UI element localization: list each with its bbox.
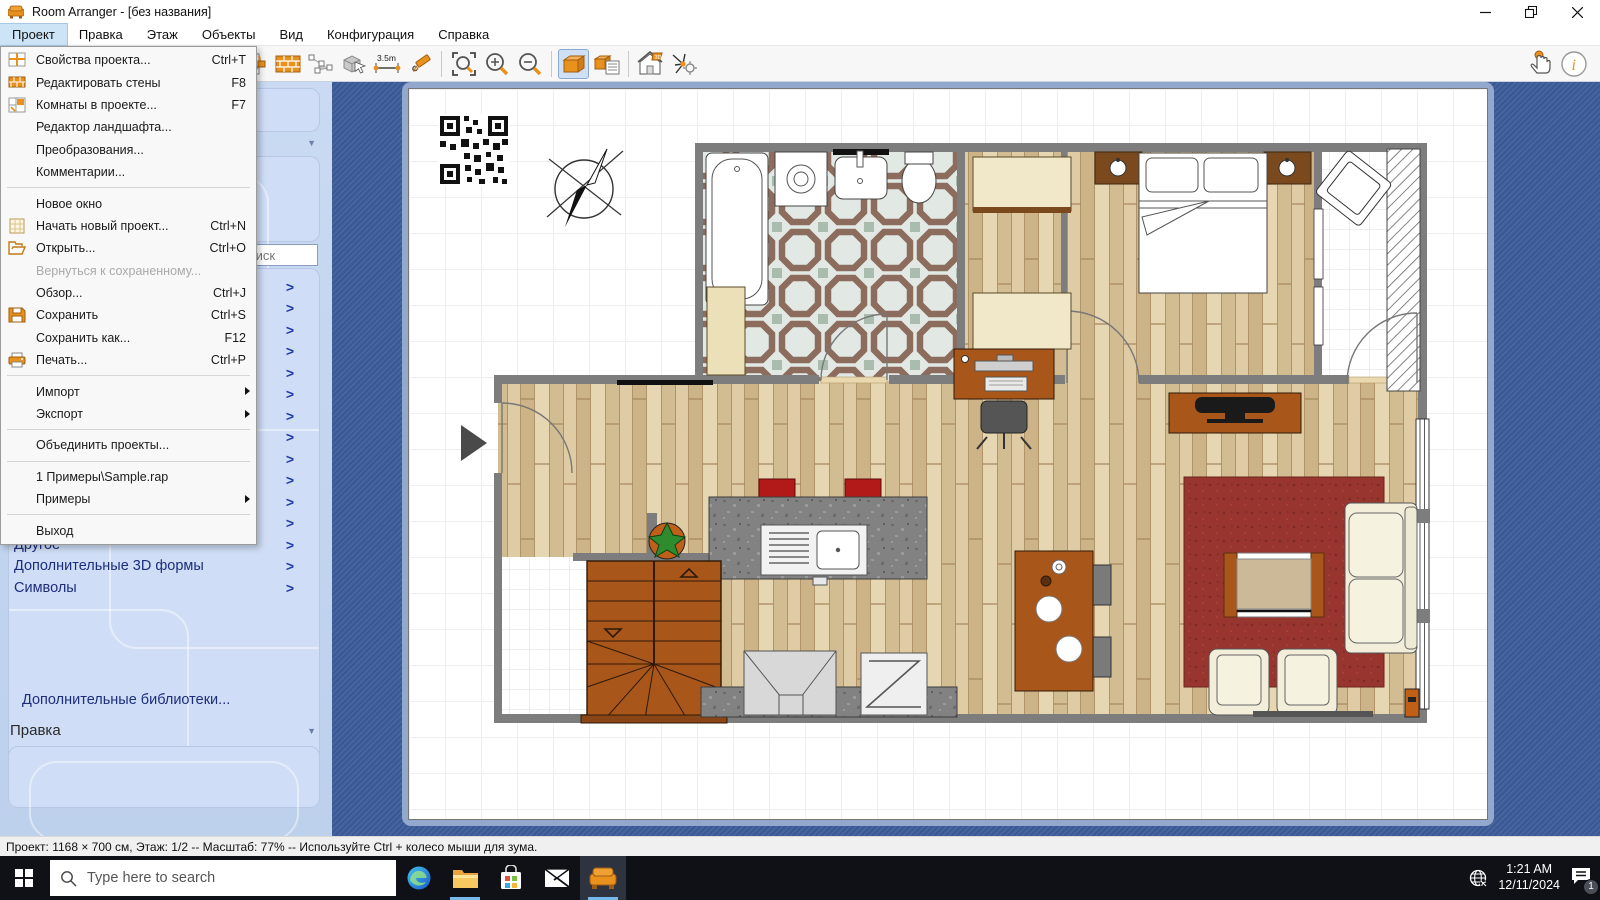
zoom-fit-button[interactable] (448, 49, 479, 79)
toolbar-separator (551, 51, 552, 77)
walkthrough-button[interactable]: 3D (635, 49, 666, 79)
edit-walls-icon (8, 74, 26, 90)
menu-item-save-as[interactable]: Сохранить как...F12 (1, 327, 256, 349)
draw-button[interactable] (404, 49, 435, 79)
edit-section-header: Правка (10, 722, 61, 739)
sofa-app-icon (8, 5, 24, 19)
entry-mat (617, 380, 713, 385)
submenu-arrow-icon (245, 387, 250, 395)
project-properties-icon (8, 52, 26, 68)
plan-paper[interactable] (408, 88, 1488, 820)
armchair (1209, 649, 1269, 715)
taskbar-clock[interactable]: 1:21 AM 12/11/2024 (1498, 862, 1560, 893)
sofa-app-icon (589, 866, 617, 890)
menu-separator (7, 461, 250, 462)
windows-taskbar: Type here to search 1:21 AM 12/11/2024 1 (0, 856, 1600, 900)
floor-marker[interactable] (461, 425, 487, 461)
wardrobe-hatched (1387, 149, 1420, 391)
menu-edit[interactable]: Правка (67, 24, 135, 45)
menu-item-project-properties[interactable]: Свойства проекта...Ctrl+T (1, 49, 256, 71)
chevron-right-icon: > (286, 558, 294, 574)
taskbar-app-file-explorer[interactable] (442, 856, 488, 900)
open-folder-icon (8, 240, 26, 256)
library-category-extra-3d-shapes[interactable]: Дополнительные 3D формы> (14, 556, 314, 578)
chevron-right-icon: > (286, 322, 294, 338)
menu-item-comments[interactable]: Комментарии... (1, 161, 256, 183)
chevron-right-icon: > (286, 279, 294, 295)
toolbar-separator (628, 51, 629, 77)
notification-count-badge: 1 (1583, 879, 1599, 895)
spray-light-icon (671, 51, 697, 77)
object-list-3d-button[interactable] (591, 49, 622, 79)
zoom-out-icon (517, 51, 543, 77)
measure-button[interactable]: 3.5m (371, 49, 402, 79)
svg-text:3.5m: 3.5m (377, 53, 396, 63)
plant (649, 523, 685, 559)
restore-button[interactable] (1508, 0, 1554, 24)
chevron-right-icon: > (286, 343, 294, 359)
menu-configuration[interactable]: Конфигурация (315, 24, 426, 45)
living-room (1184, 477, 1419, 717)
chevron-right-icon: > (286, 580, 294, 596)
close-button[interactable] (1554, 0, 1600, 24)
zoom-in-button[interactable] (481, 49, 512, 79)
library-category-symbols[interactable]: Символы> (14, 577, 314, 599)
menu-view[interactable]: Вид (267, 24, 315, 45)
chevron-right-icon: > (286, 300, 294, 316)
select-nodes-icon (308, 52, 334, 76)
menu-item-landscape-editor[interactable]: Редактор ландшафта... (1, 116, 256, 138)
menu-item-browse[interactable]: Обзор...Ctrl+J (1, 282, 256, 304)
menu-bar: Проект Правка Этаж Объекты Вид Конфигура… (0, 24, 1600, 46)
menu-item-recent-file-1[interactable]: 1 Примеры\Sample.rap (1, 466, 256, 488)
menu-item-transformations[interactable]: Преобразования... (1, 139, 256, 161)
collapse-edit-icon[interactable]: ▼ (307, 726, 316, 736)
chevron-right-icon: > (286, 365, 294, 381)
clock-date: 12/11/2024 (1498, 878, 1560, 894)
hand-pointer-icon (1528, 50, 1554, 78)
menu-item-merge-projects[interactable]: Объединить проекты... (1, 434, 256, 456)
render-settings-button[interactable] (668, 49, 699, 79)
compass-rose (547, 149, 623, 227)
chevron-right-icon: > (286, 451, 294, 467)
pencil-icon (407, 52, 433, 76)
zoom-in-icon (484, 51, 510, 77)
qr-code (438, 114, 510, 186)
view-3d-button[interactable] (558, 49, 589, 79)
move-object-3d-button[interactable] (338, 49, 369, 79)
menu-objects[interactable]: Объекты (190, 24, 268, 45)
armchair (1277, 649, 1337, 715)
restore-icon (1525, 6, 1537, 18)
network-globe-icon[interactable] (1468, 868, 1488, 888)
chevron-right-icon: > (286, 515, 294, 531)
svg-text:3D: 3D (654, 55, 661, 61)
menu-item-exit[interactable]: Выход (1, 519, 256, 541)
file-explorer-icon (452, 867, 479, 890)
sofa (1345, 503, 1417, 653)
menu-help[interactable]: Справка (426, 24, 501, 45)
chevron-right-icon: > (286, 537, 294, 553)
zoom-fit-icon (451, 51, 477, 77)
more-libraries-link[interactable]: Дополнительные библиотеки... (22, 692, 230, 708)
menu-project[interactable]: Проект (0, 24, 67, 45)
paper-mat (402, 82, 1494, 826)
system-tray: 1:21 AM 12/11/2024 1 (1468, 856, 1592, 900)
rooms-icon (8, 97, 26, 113)
submenu-arrow-icon (245, 410, 250, 418)
close-icon (1572, 7, 1583, 18)
menu-item-new-window[interactable]: Новое окно (1, 192, 256, 214)
svg-text:i: i (1571, 57, 1575, 74)
taskbar-app-mail[interactable] (534, 856, 580, 900)
printer-icon (8, 352, 26, 368)
save-floppy-icon (8, 307, 26, 323)
search-icon (60, 870, 77, 887)
menu-floor[interactable]: Этаж (135, 24, 190, 45)
door-threshold (821, 377, 887, 383)
taskbar-search-placeholder: Type here to search (87, 870, 215, 886)
menu-item-save[interactable]: СохранитьCtrl+S (1, 304, 256, 326)
edge-browser-icon (406, 865, 432, 891)
minimize-icon (1480, 7, 1491, 18)
title-bar: Room Arranger - [без названия] (0, 0, 1600, 24)
chevron-right-icon: > (286, 472, 294, 488)
menu-item-print[interactable]: Печать...Ctrl+P (1, 349, 256, 371)
panel-decor (29, 761, 299, 841)
box-cursor-icon (341, 52, 367, 76)
project-menu-dropdown: Свойства проекта...Ctrl+T Редактировать … (0, 46, 257, 545)
menu-item-rooms-in-project[interactable]: Комнаты в проекте...F7 (1, 94, 256, 116)
info-button[interactable]: i (1558, 49, 1589, 79)
notification-center-button[interactable]: 1 (1570, 866, 1592, 891)
menu-separator (7, 375, 250, 376)
submenu-arrow-icon (245, 495, 250, 503)
new-project-icon (8, 218, 26, 234)
menu-separator (7, 187, 250, 188)
select-nodes-button[interactable] (305, 49, 336, 79)
chevron-right-icon: > (286, 429, 294, 445)
menu-item-revert-to-saved: Вернуться к сохраненному... (1, 260, 256, 282)
info-icon: i (1560, 50, 1588, 78)
clock-time: 1:21 AM (1498, 862, 1560, 878)
toolbar-separator (441, 51, 442, 77)
menu-separator (7, 429, 250, 430)
menu-item-edit-walls[interactable]: Редактировать стеныF8 (1, 71, 256, 93)
chevron-right-icon: > (286, 494, 294, 510)
minimize-button[interactable] (1462, 0, 1508, 24)
window-title: Room Arranger - [без названия] (32, 5, 211, 19)
chevron-right-icon: > (286, 408, 294, 424)
menu-item-export[interactable]: Экспорт (1, 403, 256, 425)
menu-item-import[interactable]: Импорт (1, 380, 256, 402)
edit-panel (8, 746, 320, 808)
hand-pointer-button[interactable] (1525, 49, 1556, 79)
box-3d-icon (562, 52, 586, 76)
house-3d-icon: 3D (637, 51, 665, 77)
tv-stand (1169, 393, 1301, 433)
zoom-out-button[interactable] (514, 49, 545, 79)
start-button[interactable] (0, 856, 48, 900)
box-list-icon (594, 52, 620, 76)
brick-wall-icon (275, 53, 301, 75)
taskbar-app-store[interactable] (488, 856, 534, 900)
windows-logo-icon (15, 869, 33, 887)
mail-icon (544, 867, 570, 889)
room-arranger-window: Room Arranger - [без названия] Проект Пр… (0, 0, 1600, 900)
floor-plan-drawing (409, 89, 1489, 821)
taskbar-app-edge[interactable] (396, 856, 442, 900)
menu-separator (7, 514, 250, 515)
status-text: Проект: 1168 × 700 см, Этаж: 1/2 -- Масш… (6, 840, 537, 854)
stair-landing-floor (498, 557, 587, 719)
menu-item-examples[interactable]: Примеры (1, 488, 256, 510)
measure-icon: 3.5m (373, 52, 401, 76)
collapse-library-icon[interactable]: ▼ (307, 138, 316, 148)
edit-walls-button[interactable] (272, 49, 303, 79)
taskbar-app-room-arranger[interactable] (580, 856, 626, 900)
drawing-canvas[interactable] (332, 82, 1600, 836)
microsoft-store-icon (499, 865, 523, 891)
taskbar-search-input[interactable]: Type here to search (50, 860, 396, 896)
chevron-right-icon: > (286, 386, 294, 402)
menu-item-start-new-project[interactable]: Начать новый проект...Ctrl+N (1, 215, 256, 237)
status-bar: Проект: 1168 × 700 см, Этаж: 1/2 -- Масш… (0, 836, 1600, 856)
menu-item-open[interactable]: Открыть...Ctrl+O (1, 237, 256, 259)
